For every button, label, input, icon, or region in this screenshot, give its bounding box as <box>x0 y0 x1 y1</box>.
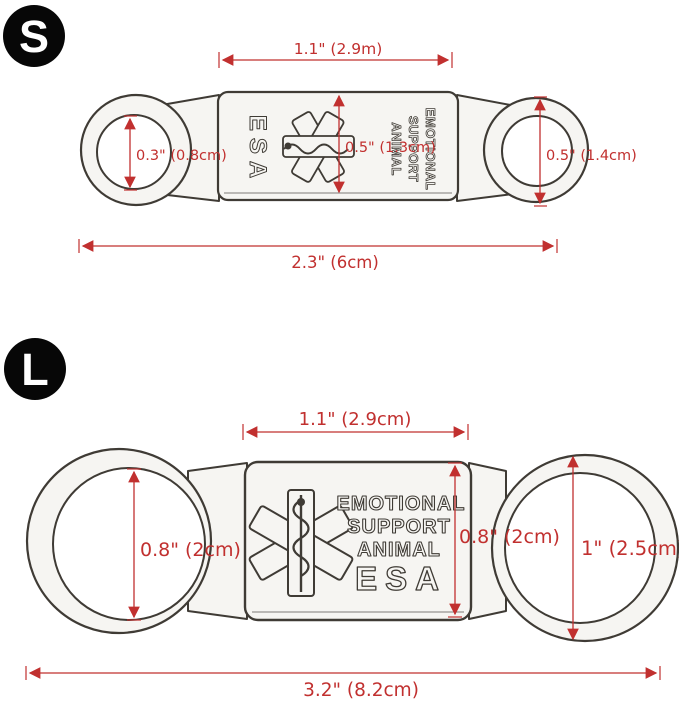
large-engraving-emotional: EMOTIONAL <box>337 493 466 515</box>
product-dimension-diagram: S ESA <box>0 0 679 701</box>
large-dim-top-label: 1.1" (2.9cm) <box>299 409 412 430</box>
large-dim-total: 3.2" (8.2cm) <box>26 666 660 701</box>
small-dim-top: 1.1" (2.9m) <box>219 40 452 68</box>
large-dim-left-hole-label: 0.8" (2cm) <box>140 539 241 561</box>
small-dim-total-label: 2.3" (6cm) <box>291 253 379 272</box>
large-dim-total-label: 3.2" (8.2cm) <box>303 680 419 701</box>
large-dim-plate-label: 0.8" (2cm) <box>459 526 560 548</box>
large-engraving-support: SUPPORT <box>347 516 451 538</box>
small-dim-plate-label: 0.5" (1.3cm) <box>345 140 436 156</box>
large-dim-top: 1.1" (2.9cm) <box>243 409 468 440</box>
size-l-section: L EMOTIONA <box>4 338 679 701</box>
size-l-badge-label: L <box>21 344 49 395</box>
size-l-badge: L <box>4 338 66 400</box>
size-s-badge-label: S <box>19 11 49 62</box>
small-dim-top-label: 1.1" (2.9m) <box>294 40 383 58</box>
small-dim-total: 2.3" (6cm) <box>79 239 557 272</box>
size-s-section: S ESA <box>3 5 637 272</box>
small-engraving-esa: ESA <box>244 115 271 185</box>
size-s-badge: S <box>3 5 65 67</box>
large-engraving-esa: ESA <box>355 560 447 597</box>
large-engraving-animal: ANIMAL <box>357 539 441 561</box>
large-dim-right-hole-label: 1" (2.5cm) <box>581 537 679 560</box>
small-dim-right-hole-label: 0.5" (1.4cm) <box>546 148 637 164</box>
small-dim-left-hole-label: 0.3" (0.8cm) <box>136 148 227 164</box>
diagram-canvas: S ESA <box>0 0 679 701</box>
